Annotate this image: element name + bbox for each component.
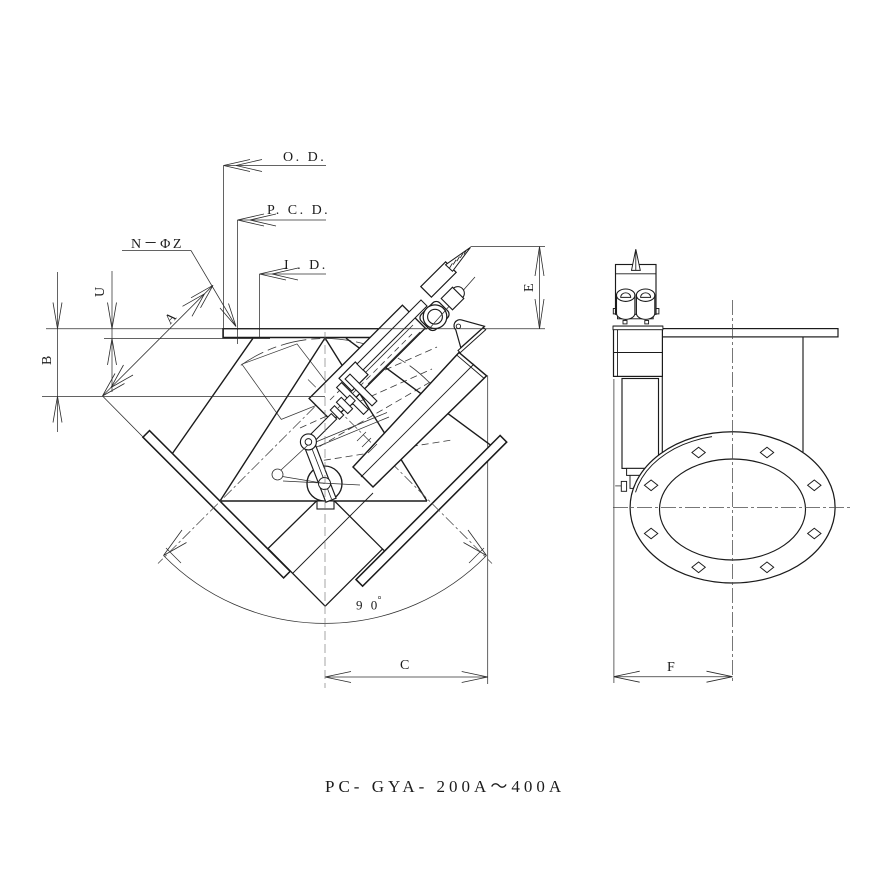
svg-text:PC- GYA- 200A～400A: PC- GYA- 200A～400A bbox=[325, 777, 565, 796]
svg-text:C: C bbox=[400, 658, 412, 673]
svg-text:N－ΦZ: N－ΦZ bbox=[131, 237, 184, 252]
svg-text:E: E bbox=[522, 281, 537, 292]
svg-text:U: U bbox=[93, 284, 108, 297]
svg-text:O. D.: O. D. bbox=[283, 150, 326, 165]
svg-text:F: F bbox=[667, 660, 677, 675]
svg-text:P. C. D.: P. C. D. bbox=[267, 203, 330, 218]
svg-text:9 0: 9 0 bbox=[356, 598, 380, 613]
svg-text:°: ° bbox=[378, 595, 385, 606]
svg-text:A: A bbox=[162, 308, 182, 328]
svg-text:I . D.: I . D. bbox=[284, 258, 328, 273]
svg-text:B: B bbox=[40, 353, 55, 365]
